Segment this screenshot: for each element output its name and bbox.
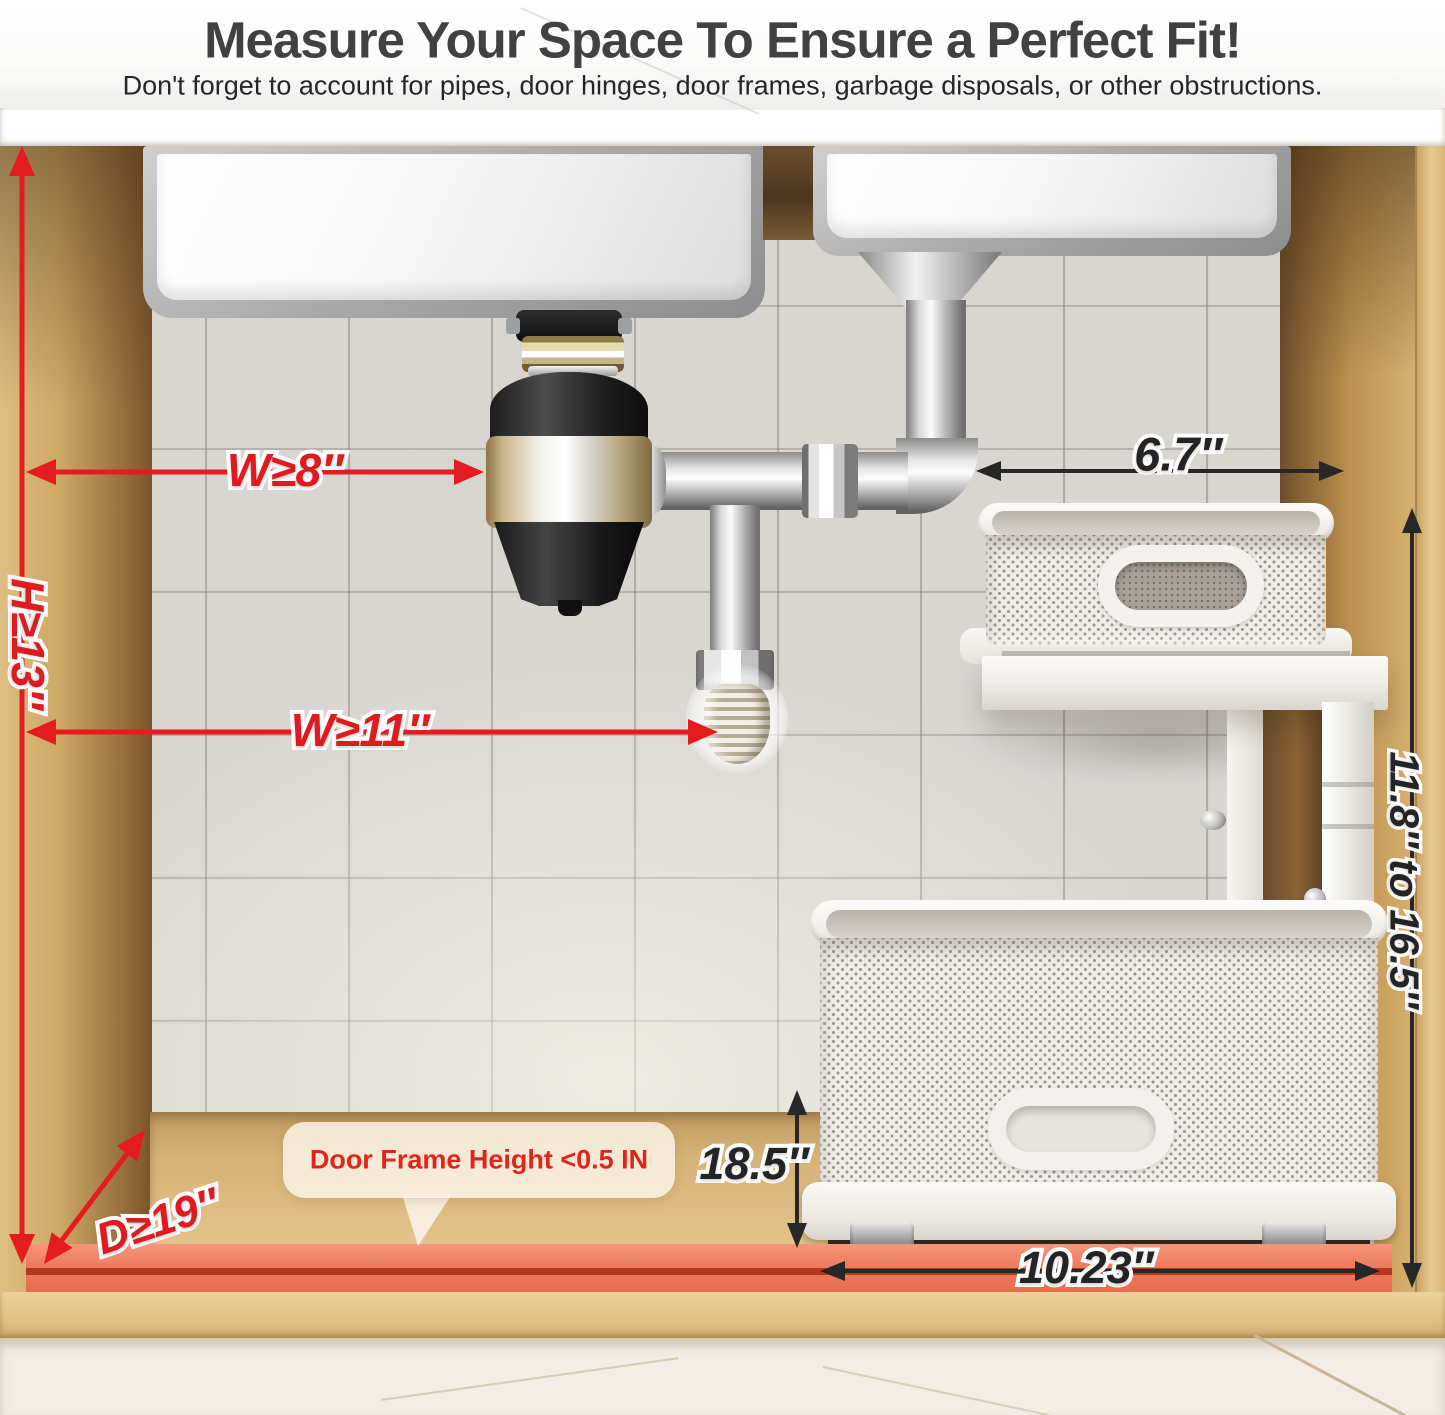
disposal-mount-tab xyxy=(506,318,520,334)
arrow-head xyxy=(688,719,718,745)
disposal-bottom-nub xyxy=(558,600,582,616)
page-subtitle: Don't forget to account for pipes, door … xyxy=(123,71,1323,102)
label-drawer-depth: 18.5″ xyxy=(699,1138,808,1190)
horizontal-drain-pipe xyxy=(658,452,908,510)
basket-interior xyxy=(826,910,1372,938)
arrow-head xyxy=(1319,461,1344,481)
page-title: Measure Your Space To Ensure a Perfect F… xyxy=(204,11,1241,70)
cabinet-front-sill xyxy=(0,1292,1445,1340)
shadow xyxy=(1280,146,1418,376)
organizer-rear-post xyxy=(1227,704,1263,918)
post-joint xyxy=(1322,782,1374,787)
bottom-basket xyxy=(810,900,1388,1244)
label-adjustable-height: 11.8″ to 16.5″ xyxy=(1381,751,1428,1008)
basket-handle-cutout xyxy=(988,1088,1174,1170)
top-basket xyxy=(978,503,1334,645)
arrow-head xyxy=(9,146,35,176)
speech-bubble-tail xyxy=(402,1194,452,1246)
under-sink-measurement-infographic: Measure Your Space To Ensure a Perfect F… xyxy=(0,0,1445,1415)
arrow-head xyxy=(454,459,484,485)
door-frame-note-bubble: Door Frame Height <0.5 IN xyxy=(283,1122,675,1198)
label-drawer-width: 10.23″ xyxy=(1019,1242,1153,1294)
between-sinks-wood xyxy=(763,146,815,240)
arrow-head xyxy=(787,1090,807,1115)
disposal-steel-band xyxy=(486,436,652,528)
label-height-min: H≥13″ xyxy=(1,578,55,710)
arrow-head xyxy=(787,1223,807,1248)
vertical-drain-pipe xyxy=(710,505,760,655)
marble-vein xyxy=(381,1357,678,1401)
label-top-tier-width: 6.7″ xyxy=(1134,427,1222,482)
label-width-disposal: W≥8″ xyxy=(227,443,343,497)
arrow-head xyxy=(820,1261,845,1281)
drain-tailpiece-pipe xyxy=(906,300,966,452)
label-width-drain: W≥11″ xyxy=(291,703,429,757)
arrow-head xyxy=(1402,508,1422,533)
post-joint xyxy=(1322,824,1374,829)
arrow-head xyxy=(26,719,56,745)
post-screw xyxy=(1200,810,1226,830)
countertop xyxy=(0,108,1445,148)
marble-vein xyxy=(823,1366,1078,1415)
basket-interior xyxy=(992,511,1320,535)
marble-floor xyxy=(0,1338,1445,1415)
right-sink-basin xyxy=(813,146,1291,256)
left-sink-basin xyxy=(143,146,765,318)
door-frame-note-text: Door Frame Height <0.5 IN xyxy=(310,1145,648,1176)
marble-vein xyxy=(1439,0,1445,111)
pipe-coupling-nut xyxy=(802,444,858,518)
floor-grout-line xyxy=(1254,1334,1432,1415)
arrow-head xyxy=(1355,1261,1380,1281)
basket-window xyxy=(1098,545,1264,627)
disposal-mount-tab xyxy=(618,318,632,334)
arrow-head xyxy=(26,459,56,485)
arrow-head xyxy=(1402,1263,1422,1288)
sink-face xyxy=(827,154,1277,238)
sink-face xyxy=(157,154,751,300)
arrow-head xyxy=(976,461,1001,481)
